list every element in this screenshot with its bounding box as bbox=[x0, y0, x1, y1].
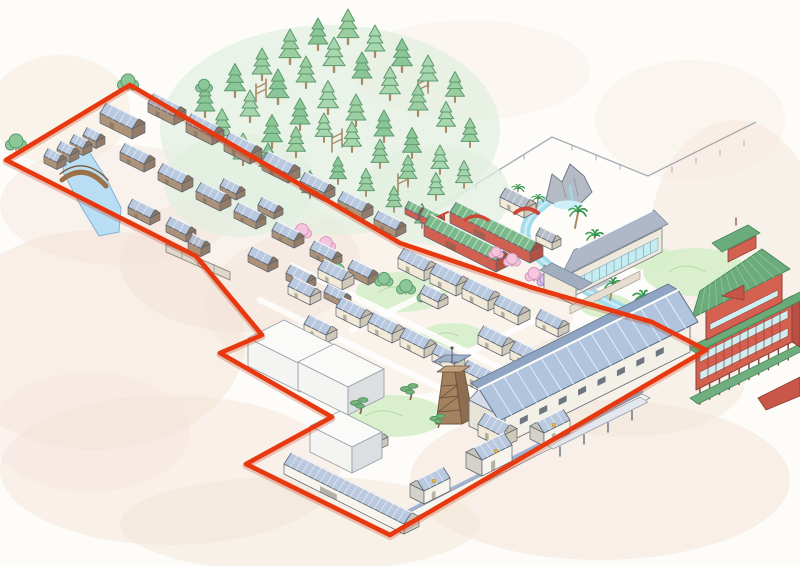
palm-tree bbox=[578, 211, 586, 216]
cherry-tree bbox=[491, 247, 501, 257]
leafy-tree bbox=[400, 280, 413, 293]
conifer-tree bbox=[341, 9, 354, 21]
palm-tree bbox=[518, 188, 524, 191]
leafy-tree bbox=[9, 134, 23, 148]
leafy-tree bbox=[378, 272, 390, 284]
pine-tree bbox=[356, 404, 365, 408]
leafy-tree bbox=[198, 79, 209, 90]
rock-waterfall bbox=[546, 164, 592, 206]
fire-watchtower bbox=[450, 346, 453, 349]
gold-ornament bbox=[494, 449, 498, 453]
red-onsen-hall bbox=[758, 377, 800, 410]
cherry-tree bbox=[528, 267, 540, 279]
pine-tree bbox=[436, 414, 445, 418]
gold-ornament bbox=[552, 423, 556, 427]
gold-ornament bbox=[432, 479, 436, 483]
pine-tree bbox=[408, 384, 418, 389]
cherry-tree bbox=[506, 253, 517, 264]
palm-trunk bbox=[575, 212, 578, 228]
map-canvas bbox=[0, 0, 800, 566]
pine-tree bbox=[358, 398, 368, 403]
conifer-tree bbox=[312, 18, 324, 29]
pine-tree bbox=[434, 419, 442, 423]
illustrated-park-map bbox=[0, 0, 800, 566]
pine-tree bbox=[406, 390, 415, 394]
watercolor-wash bbox=[595, 60, 785, 180]
